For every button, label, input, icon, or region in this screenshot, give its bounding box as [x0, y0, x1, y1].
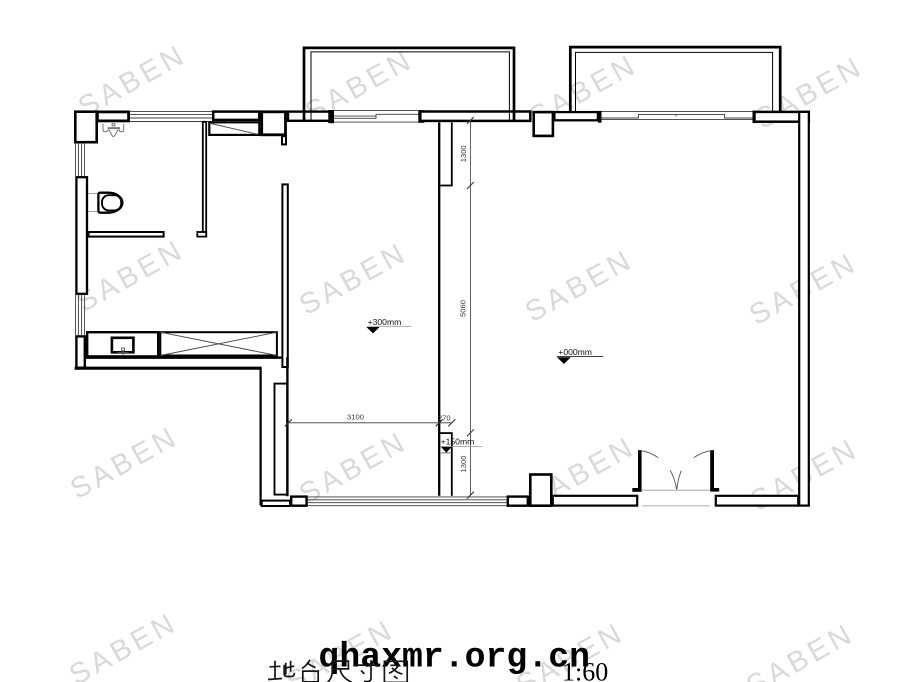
- svg-text:1300: 1300: [459, 456, 468, 473]
- svg-text:+000mm: +000mm: [558, 347, 592, 357]
- svg-text:1:60: 1:60: [562, 658, 608, 682]
- svg-text:1300: 1300: [459, 145, 468, 162]
- svg-text:270: 270: [438, 413, 451, 422]
- svg-text:3100: 3100: [347, 412, 364, 421]
- svg-text:qhaxmr.org.cn: qhaxmr.org.cn: [319, 639, 590, 678]
- svg-text:5060: 5060: [459, 300, 468, 317]
- svg-text:+150mm: +150mm: [441, 437, 475, 447]
- svg-text:+300mm: +300mm: [368, 317, 402, 327]
